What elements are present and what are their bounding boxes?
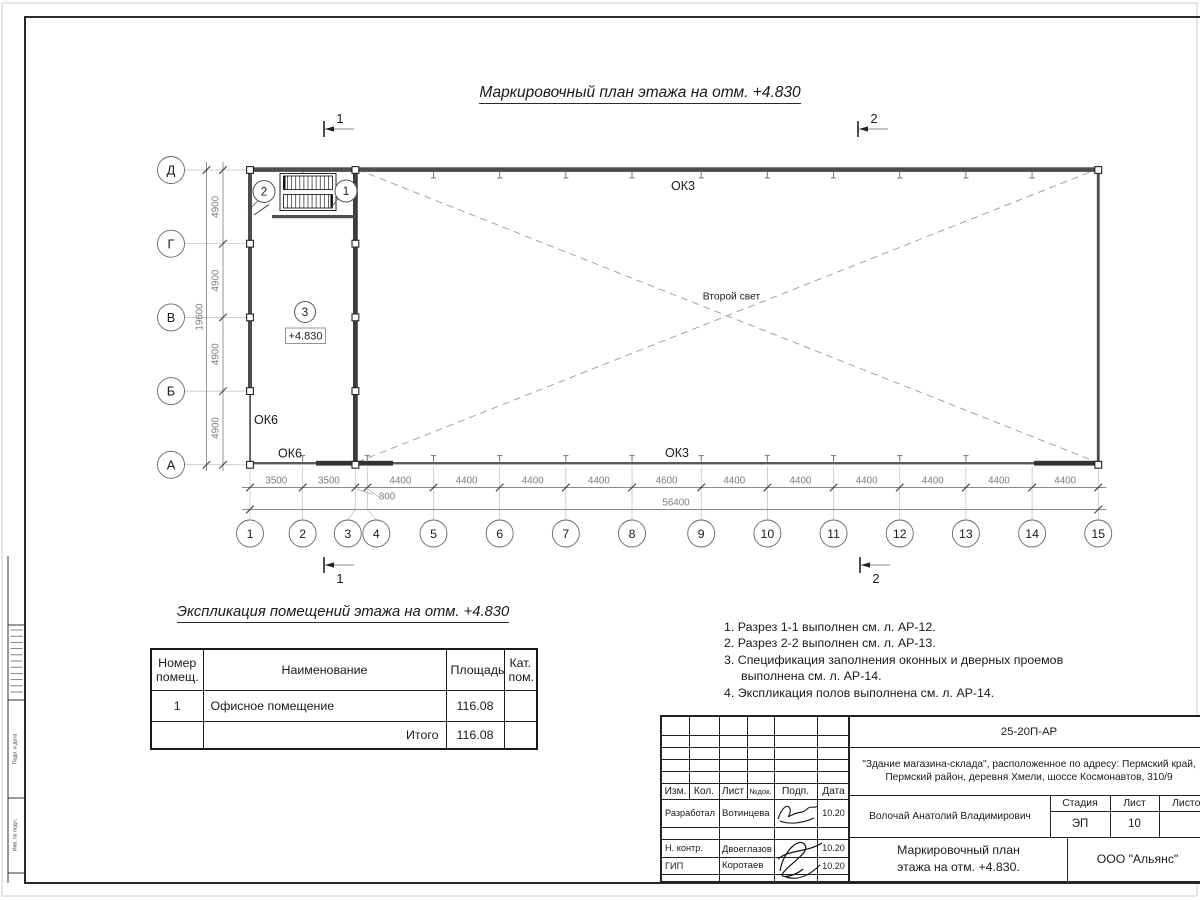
signature-icon (770, 835, 826, 881)
empty-cell (504, 721, 537, 749)
room-name: Офисное помещение (203, 690, 446, 721)
dim-label: 4400 (588, 476, 610, 487)
dim-label: 4400 (456, 476, 478, 487)
col-dok: №док. (747, 783, 774, 799)
sheets-label: Листов (1159, 795, 1200, 811)
empty-cell (151, 721, 203, 749)
sheet-title: Маркировочный план этажа на отм. +4.830 (300, 84, 980, 102)
dim-label: 4600 (656, 476, 678, 487)
date-developer: 10.20 (817, 799, 850, 827)
col-izm: Изм. (662, 783, 689, 799)
left-dimensions: 490049004900490019600 (195, 162, 227, 471)
dim-label: 4400 (790, 476, 812, 487)
dim-label: 4400 (390, 476, 412, 487)
section-mark-label: 1 (336, 111, 343, 126)
notes-list: 1. Разрез 1-1 выполнен см. л. АР-12. 2. … (724, 619, 1077, 701)
divider (662, 759, 850, 760)
dim-label: 4900 (211, 343, 222, 365)
left-attribute-strip: Подп. и датаИнв. № подл. (8, 556, 25, 883)
axis-label: 14 (1025, 527, 1039, 541)
window-label-ok6-left: ОК6 (254, 413, 278, 427)
dim-total-height: 19600 (195, 303, 206, 331)
approver-name: Волочай Анатолий Владимирович (850, 795, 1050, 837)
axis-label: Г (168, 236, 175, 251)
sheet-title-text: Маркировочный план этажа на отм. +4.830 (479, 84, 800, 104)
col-header-cat: Кат. пом. (504, 649, 537, 690)
divider (662, 771, 850, 772)
note-3: 3. Спецификация заполнения оконных и две… (724, 652, 1077, 685)
col-header-name: Наименование (203, 649, 446, 690)
second-light-label: Второй свет (703, 292, 761, 303)
col-data: Дата (817, 783, 850, 799)
axis-label: 10 (761, 527, 775, 541)
window-label-ok3-top: ОК3 (671, 179, 695, 193)
role-gip: ГИП (662, 857, 722, 874)
axis-label: 15 (1091, 527, 1105, 541)
section-mark-label: 2 (870, 111, 877, 126)
walls (248, 167, 1100, 466)
plan-annotations: 213+4.830ОК3ОК3ОК6ОК6Второй свет (248, 179, 761, 461)
section-marks: 1212 (324, 111, 890, 586)
divider (662, 747, 850, 748)
dim-label: 4900 (211, 269, 222, 291)
name-gip: Коротаев (719, 857, 777, 874)
bottom-axis-bubbles: 123456789101112131415 (237, 520, 1112, 547)
strip-label: Инв. № подл. (13, 819, 19, 851)
project-line-2: Пермский район, деревня Хмели, шоссе Кос… (885, 771, 1172, 785)
axis-label: А (167, 457, 176, 472)
col-header-area: Площадь (446, 649, 504, 690)
dim-label: 4400 (988, 476, 1010, 487)
company-name: ООО "Альянс" (1067, 837, 1200, 881)
axis-label: Д (167, 163, 176, 178)
extension-lines (185, 170, 1099, 520)
door-marker-2: 2 (261, 187, 267, 199)
total-value: 116.08 (446, 721, 504, 749)
name-developer: Вотинцева (719, 799, 777, 827)
axis-label: 12 (893, 527, 907, 541)
axis-label: 6 (496, 527, 503, 541)
total-label: Итого (203, 721, 446, 749)
axis-label: 4 (373, 527, 380, 541)
dim-label: 4400 (522, 476, 544, 487)
explication-title: Экспликация помещений этажа на отм. +4.8… (150, 603, 536, 621)
col-kol: Кол. (689, 783, 719, 799)
project-line-1: "Здание магазина-склада", расположенное … (862, 758, 1196, 772)
axis-label: 3 (344, 527, 351, 541)
window-label-ok6-bottom: ОК6 (278, 447, 302, 461)
explication-table: Номер помещ. Наименование Площадь Кат. п… (150, 648, 538, 750)
bottom-dimensions: 3500350044004400440044004600440044004400… (242, 476, 1106, 514)
dim-label: 4400 (922, 476, 944, 487)
axis-label: 8 (629, 527, 636, 541)
dim-label: 4900 (211, 416, 222, 438)
stage-label: Стадия (1050, 795, 1110, 811)
divider (662, 735, 850, 736)
col-header-number: Номер помещ. (151, 649, 203, 690)
note-4: 4. Экспликация полов выполнена см. л. АР… (724, 685, 1077, 701)
explication-title-text: Экспликация помещений этажа на отм. +4.8… (177, 604, 510, 623)
signature-icon (775, 800, 819, 826)
second-light-diagonals (358, 170, 1097, 463)
title-block: Изм. Кол. Лист №док. Подп. Дата Разработ… (660, 715, 1200, 883)
dim-label: 4900 (211, 195, 222, 217)
role-developer: Разработал (662, 799, 722, 827)
axis-label: 2 (299, 527, 306, 541)
axis-label: 5 (430, 527, 437, 541)
project-name: "Здание магазина-склада", расположенное … (850, 747, 1200, 795)
dim-label: 3500 (265, 476, 287, 487)
drawing-title: Маркировочный план этажа на отм. +4.830. (850, 837, 1067, 881)
door-marker-1: 1 (343, 186, 349, 198)
column-markers (247, 167, 1102, 469)
elevation-mark: +4.830 (289, 331, 323, 343)
dim-label: 3500 (318, 476, 340, 487)
dim-label-800: 800 (379, 492, 396, 503)
dim-label: 4400 (1054, 476, 1076, 487)
axis-label: 13 (959, 527, 973, 541)
staircase (280, 174, 336, 211)
table-header-row: Номер помещ. Наименование Площадь Кат. п… (151, 649, 537, 690)
window-label-ok3-bottom: ОК3 (665, 446, 689, 460)
dim-label: 4400 (856, 476, 878, 487)
drawing-title-line-1: Маркировочный план (897, 842, 1020, 859)
section-mark-label: 2 (872, 571, 879, 586)
sheet-value: 10 (1110, 811, 1159, 837)
name-ncontrol: Двоеглазов (719, 839, 777, 857)
drawing-title-line-2: этажа на отм. +4.830. (897, 859, 1020, 876)
dim-total-width: 56400 (662, 498, 690, 509)
axis-label: 9 (698, 527, 705, 541)
stage-value: ЭП (1050, 811, 1110, 837)
col-list: Лист (719, 783, 747, 799)
axis-label: 7 (562, 527, 569, 541)
note-1: 1. Разрез 1-1 выполнен см. л. АР-12. (724, 619, 1077, 635)
col-podp: Подп. (774, 783, 817, 799)
note-2: 2. Разрез 2-2 выполнен см. л. АР-13. (724, 635, 1077, 651)
room-marker: 3 (302, 307, 308, 319)
room-area: 116.08 (446, 690, 504, 721)
table-total-row: Итого 116.08 (151, 721, 537, 749)
axis-label: Б (167, 384, 175, 399)
window-ticks (300, 172, 1035, 462)
sheet-label: Лист (1110, 795, 1159, 811)
axis-label: 11 (827, 527, 840, 541)
section-mark-label: 1 (336, 571, 343, 586)
axis-label: 1 (247, 527, 254, 541)
strip-label: Подп. и дата (13, 734, 19, 765)
table-row: 1 Офисное помещение 116.08 (151, 690, 537, 721)
divider (662, 827, 850, 828)
room-cat (504, 690, 537, 721)
room-number: 1 (151, 690, 203, 721)
axis-label: В (167, 310, 176, 325)
dim-label: 4400 (723, 476, 745, 487)
role-ncontrol: Н. контр. (662, 839, 722, 857)
doc-number: 25-20П-АР (850, 717, 1200, 747)
left-axis-bubbles: ДГВБА (158, 157, 185, 479)
